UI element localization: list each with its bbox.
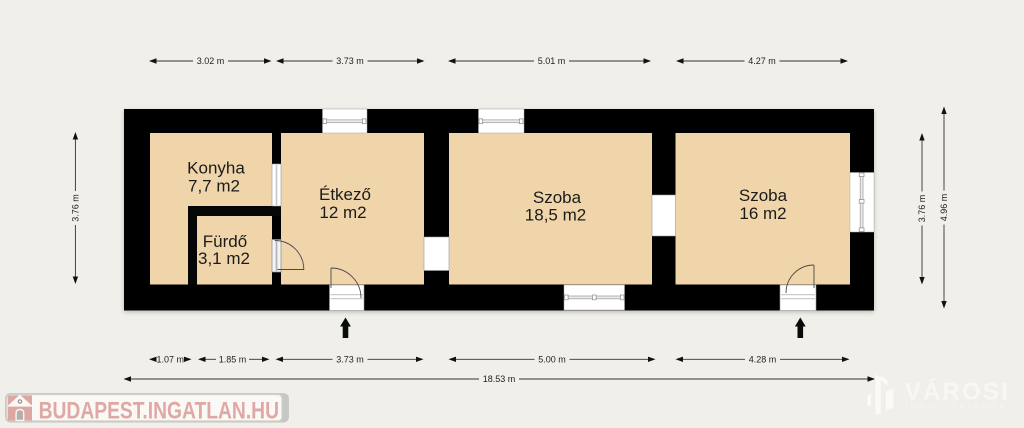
svg-text:4.27 m: 4.27 m	[748, 56, 776, 66]
svg-text:4.96 m: 4.96 m	[939, 194, 949, 222]
svg-text:3.73 m: 3.73 m	[336, 56, 364, 66]
svg-text:BUDAPEST.INGATLAN.HU: BUDAPEST.INGATLAN.HU	[39, 397, 279, 425]
svg-text:5.00 m: 5.00 m	[538, 355, 566, 365]
svg-text:Szoba: Szoba	[739, 186, 788, 205]
svg-text:16 m2: 16 m2	[739, 204, 786, 223]
svg-text:3,1 m2: 3,1 m2	[198, 249, 250, 268]
svg-text:18.53 m: 18.53 m	[483, 374, 516, 384]
svg-text:INGATLANIRODA: INGATLANIRODA	[906, 404, 1008, 411]
svg-text:Szoba: Szoba	[533, 188, 582, 207]
svg-text:3.76 m: 3.76 m	[71, 194, 81, 222]
svg-text:18,5 m2: 18,5 m2	[525, 206, 586, 225]
svg-text:12 m2: 12 m2	[319, 203, 366, 222]
svg-text:3.02 m: 3.02 m	[197, 56, 225, 66]
svg-text:3.73 m: 3.73 m	[336, 355, 364, 365]
svg-text:7,7 m2: 7,7 m2	[188, 177, 240, 196]
svg-text:1.07 m: 1.07 m	[157, 355, 185, 365]
svg-text:1.85 m: 1.85 m	[219, 355, 247, 365]
svg-text:Étkező: Étkező	[319, 185, 371, 204]
svg-text:3.76 m: 3.76 m	[917, 195, 927, 223]
svg-text:5.01 m: 5.01 m	[538, 56, 566, 66]
svg-text:4.28 m: 4.28 m	[749, 355, 777, 365]
svg-text:VÁROSI: VÁROSI	[905, 377, 1010, 405]
svg-text:Konyha: Konyha	[187, 159, 245, 178]
